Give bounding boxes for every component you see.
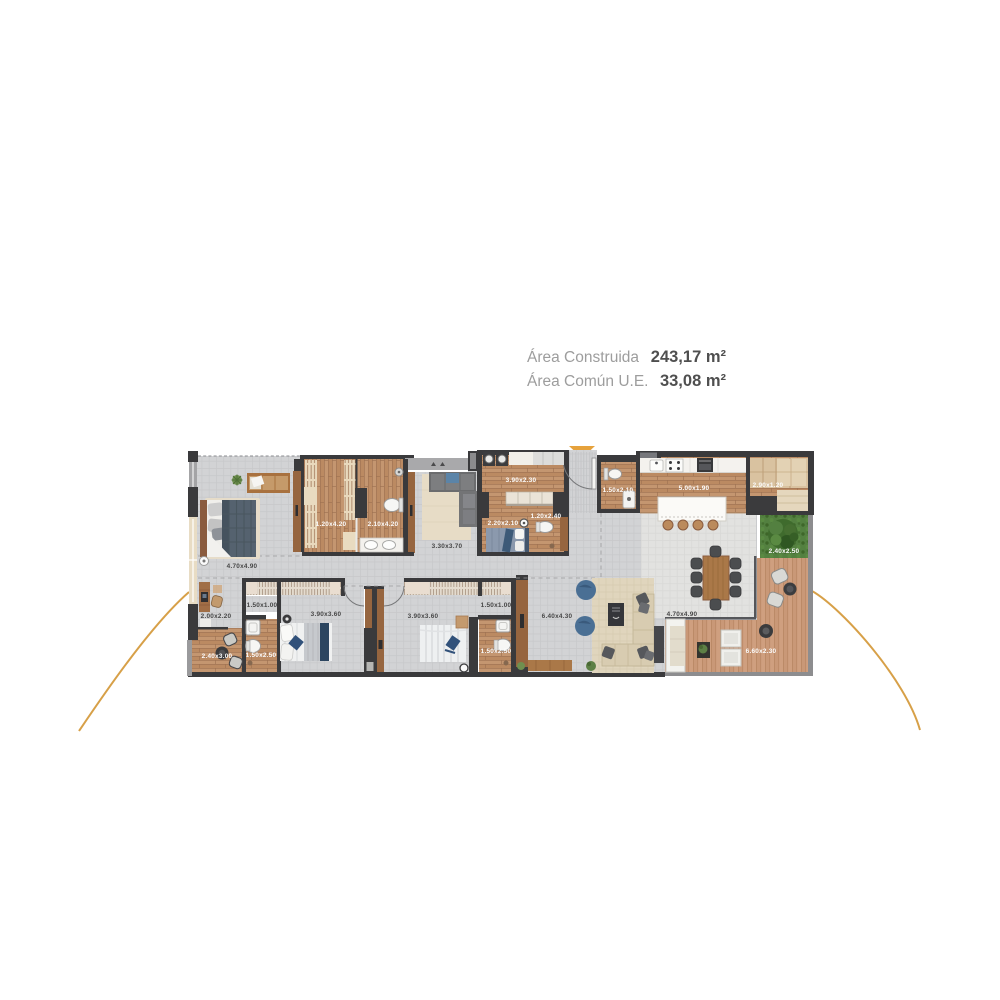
svg-text:Área Construida: Área Construida [527,349,639,366]
svg-text:1.50x2.50: 1.50x2.50 [481,648,512,655]
svg-text:4.70x4.90: 4.70x4.90 [667,611,698,618]
svg-text:1.50x1.00: 1.50x1.00 [481,602,512,609]
svg-text:2.40x3.00: 2.40x3.00 [202,653,233,660]
svg-text:33,08 m²: 33,08 m² [660,372,727,390]
svg-text:2.00x2.20: 2.00x2.20 [201,613,232,620]
svg-text:2.20x2.10: 2.20x2.10 [488,520,519,527]
svg-text:6.60x2.30: 6.60x2.30 [746,648,777,655]
svg-text:3.90x2.30: 3.90x2.30 [506,477,537,484]
svg-text:3.90x3.60: 3.90x3.60 [311,611,342,618]
svg-text:Área Común U.E.: Área Común U.E. [527,373,648,390]
svg-text:1.50x2.10: 1.50x2.10 [603,487,634,494]
svg-text:243,17 m²: 243,17 m² [651,348,727,366]
svg-text:1.50x1.00: 1.50x1.00 [247,602,278,609]
svg-text:4.70x4.90: 4.70x4.90 [227,563,258,570]
svg-text:1.50x2.50: 1.50x2.50 [246,652,277,659]
svg-text:5.00x1.90: 5.00x1.90 [679,485,710,492]
svg-text:2.10x4.20: 2.10x4.20 [368,521,399,528]
svg-text:2.90x1.20: 2.90x1.20 [753,482,784,489]
svg-text:1.20x4.20: 1.20x4.20 [316,521,347,528]
svg-text:6.40x4.30: 6.40x4.30 [542,613,573,620]
svg-text:3.90x3.60: 3.90x3.60 [408,613,439,620]
svg-text:1.20x2.40: 1.20x2.40 [531,513,562,520]
svg-text:2.40x2.50: 2.40x2.50 [769,548,800,555]
svg-text:3.30x3.70: 3.30x3.70 [432,543,463,550]
